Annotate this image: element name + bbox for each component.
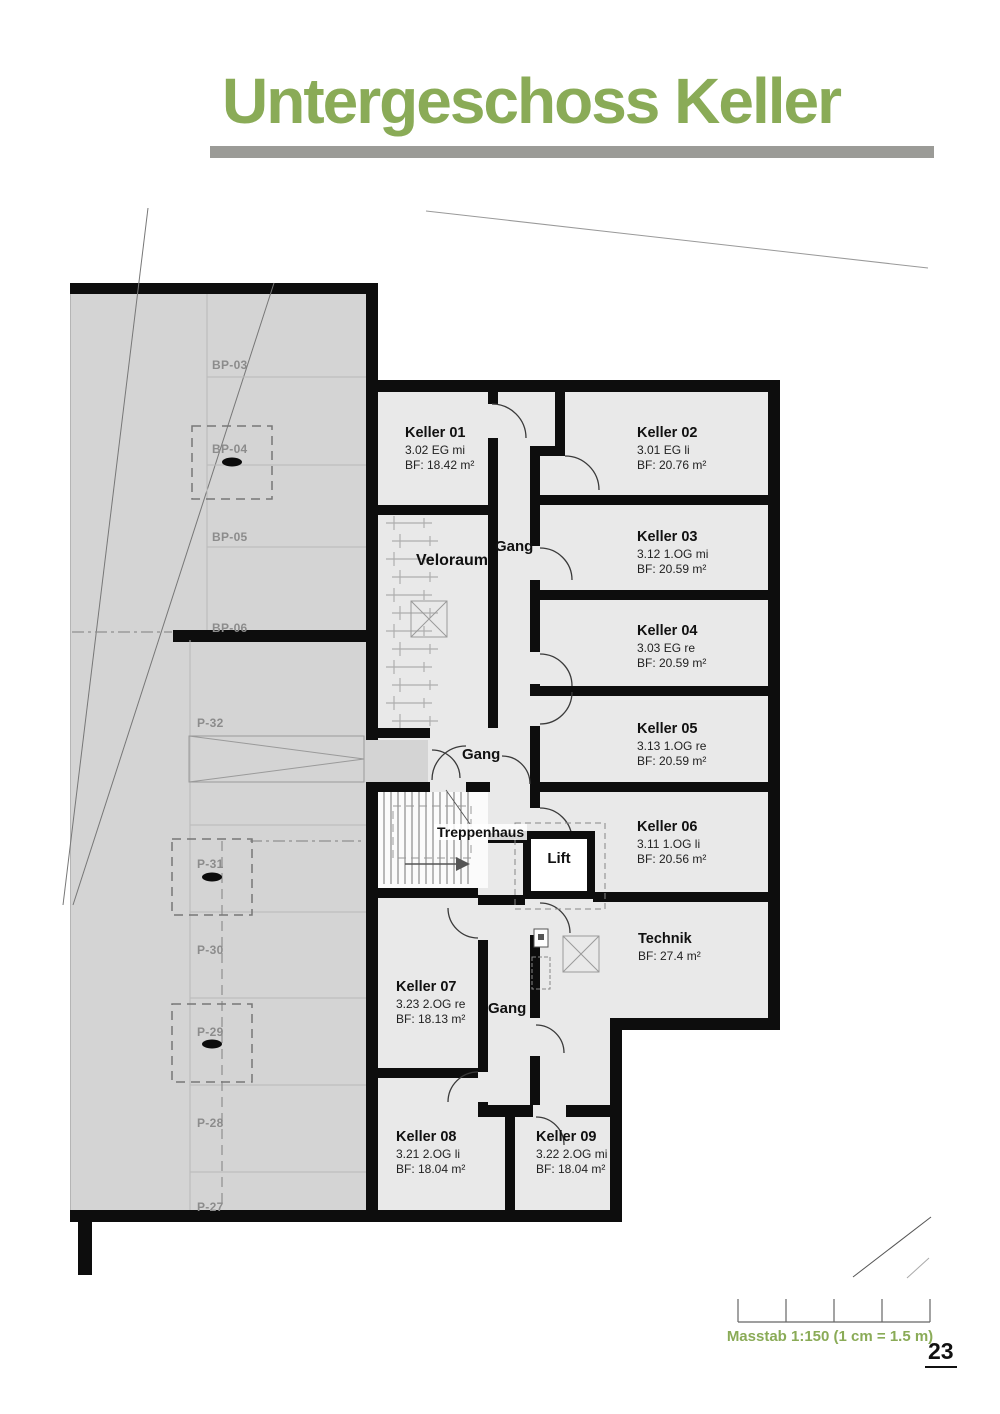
space-label-gang-lower: Gang [488,1000,526,1017]
wall-keller06-bottom [593,892,768,902]
room-area: BF: 20.76 m² [637,458,706,474]
parking-stall-label-p32: P-32 [197,716,224,730]
room-label-keller03: Keller 03 3.12 1.OG mi BF: 20.59 m² [637,528,708,578]
parking-area [70,294,367,1210]
wall-lower-right [610,1018,622,1222]
title-underline [210,146,934,158]
stairwell-floor [378,792,488,888]
space-label-treppenhaus: Treppenhaus [434,824,527,840]
wall-keller07-right [478,940,488,1072]
scale-bar [738,1299,930,1322]
wall-keller06-left-a [530,782,540,808]
room-area: BF: 18.13 m² [396,1012,465,1028]
space-label-veloraum: Veloraum [416,552,488,570]
room-code: 3.21 2.OG li [396,1147,465,1163]
wall-bottom-left-stub [78,1210,92,1275]
parking-stall-label-bp05: BP-05 [212,530,248,544]
room-code: 3.22 2.OG mi [536,1147,607,1163]
parking-stall-label-p30: P-30 [197,943,224,957]
wall-building-left-upper [366,283,378,740]
wall-technik-left [530,935,540,1018]
room-code: 3.01 EG li [637,443,706,459]
parking-stall-label-p29: P-29 [197,1025,224,1039]
parking-stall-label-bp04: BP-04 [212,442,248,456]
room-name: Keller 05 [637,720,706,739]
room-name: Keller 04 [637,622,706,641]
page-title: Untergeschoss Keller [222,64,840,138]
building-main-area [378,392,768,1018]
parking-passage [366,740,428,782]
wall-keller04-bottom [530,686,768,696]
wall-passage-bottom [366,782,430,792]
room-area: BF: 18.04 m² [536,1162,607,1178]
room-name: Keller 08 [396,1128,465,1147]
room-name: Keller 06 [637,818,706,837]
page-number: 23 [925,1338,957,1368]
wall-parking-top [70,283,375,294]
wall-veloraum-bottom [366,728,430,738]
parking-stall-label-p27: P-27 [197,1200,224,1214]
wall-lift-stub-bottom [488,895,525,905]
room-label-keller01: Keller 01 3.02 EG mi BF: 18.42 m² [405,424,474,474]
room-name: Keller 07 [396,978,465,997]
room-code: 3.11 1.OG li [637,837,706,853]
parking-stall-label-bp06: BP-06 [212,621,248,635]
room-label-keller09: Keller 09 3.22 2.OG mi BF: 18.04 m² [536,1128,607,1178]
space-label-gang-mid: Gang [462,746,500,763]
space-label-lift: Lift [523,850,595,867]
room-area: BF: 20.59 m² [637,656,706,672]
room-label-technik: Technik BF: 27.4 m² [638,930,701,964]
room-code: 3.03 EG re [637,641,706,657]
room-label-keller08: Keller 08 3.21 2.OG li BF: 18.04 m² [396,1128,465,1178]
room-label-keller04: Keller 04 3.03 EG re BF: 20.59 m² [637,622,706,672]
wall-keller08-right-stub [478,1102,488,1115]
room-label-keller02: Keller 02 3.01 EG li BF: 20.76 m² [637,424,706,474]
wall-keller08-top [378,1068,478,1078]
room-label-keller05: Keller 05 3.13 1.OG re BF: 20.59 m² [637,720,706,770]
wall-gang-right-a [530,456,540,546]
room-area: BF: 20.56 m² [637,852,706,868]
room-name: Keller 02 [637,424,706,443]
scale-label: Masstab 1:150 (1 cm = 1.5 m) [705,1328,955,1345]
room-code: 3.13 1.OG re [637,739,706,755]
wall-keller01-bottom [378,505,490,515]
room-area: BF: 20.59 m² [637,562,708,578]
room-label-keller07: Keller 07 3.23 2.OG re BF: 18.13 m² [396,978,465,1028]
wall-gang-jog [530,446,565,456]
wall-building-left-lower [366,782,378,1222]
wall-keller03-bottom [530,590,768,600]
wall-gang-lower-right [530,1056,540,1105]
room-area: BF: 27.4 m² [638,949,701,965]
parking-stall-label-p28: P-28 [197,1116,224,1130]
room-code: 3.12 1.OG mi [637,547,708,563]
wall-step-bottom [610,1018,780,1030]
wall-keller08-09-divider [505,1105,515,1210]
room-code: 3.23 2.OG re [396,997,465,1013]
floorplan-page: Untergeschoss Keller [0,0,1000,1414]
wall-parking-mid [173,630,366,642]
wall-stair-top [466,782,490,792]
room-name: Keller 01 [405,424,474,443]
room-area: BF: 18.04 m² [396,1162,465,1178]
wall-stair-bottom [378,888,478,898]
wall-keller07-right-stub [478,895,488,905]
wall-keller05-left [530,726,540,782]
wall-gang-right-b [530,580,540,652]
wall-gang-left [488,438,498,728]
parking-stall-label-p31: P-31 [197,857,224,871]
room-name: Keller 03 [637,528,708,547]
wall-gang-right-c [530,684,540,696]
room-area: BF: 20.59 m² [637,754,706,770]
room-name: Technik [638,930,701,949]
space-label-gang-upper: Gang [495,538,533,555]
parking-stall-label-bp03: BP-03 [212,358,248,372]
wall-gang-left-stub [488,392,498,404]
room-area: BF: 18.42 m² [405,458,474,474]
wall-building-top [366,380,780,392]
wall-keller09-top [566,1105,622,1117]
wall-keller05-bottom [530,782,768,792]
room-label-keller06: Keller 06 3.11 1.OG li BF: 20.56 m² [637,818,706,868]
room-code: 3.02 EG mi [405,443,474,459]
room-name: Keller 09 [536,1128,607,1147]
wall-keller02-bottom [530,495,768,505]
wall-bottom [70,1210,622,1222]
wall-building-right [768,380,780,1030]
